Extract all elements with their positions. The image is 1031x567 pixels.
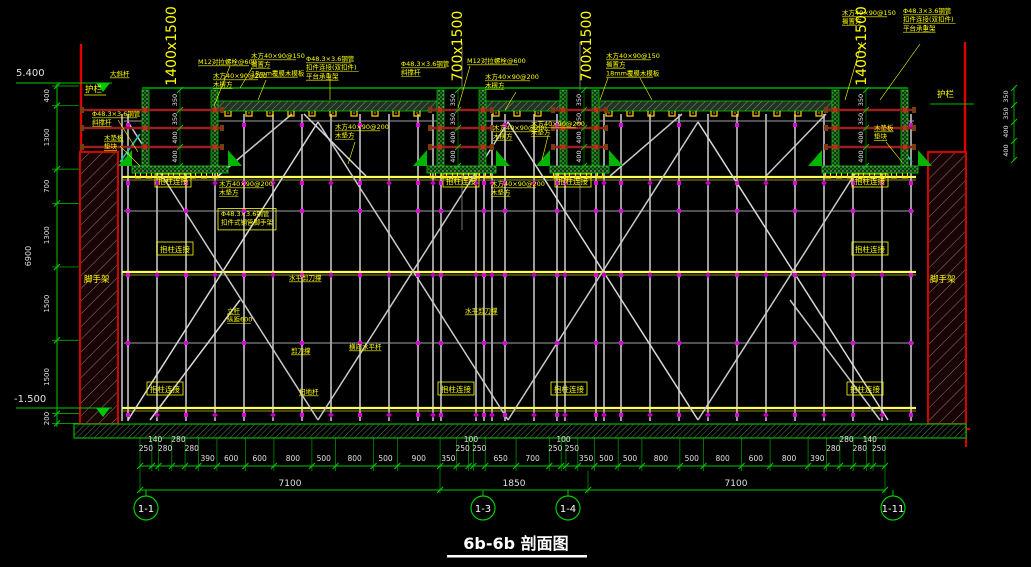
leader-label: M12对拉螺栓@600 — [467, 56, 526, 65]
label-line: 垫块 — [874, 132, 888, 141]
bottom-chain-dim: 800 — [654, 454, 669, 463]
label-line: 木方40×90@200 — [485, 72, 539, 81]
connector-marker — [386, 412, 392, 418]
beam-size-label-4: 1400x1500 — [854, 6, 870, 86]
connector-marker — [594, 209, 598, 213]
label-line: 18mm覆膜木模板 — [251, 68, 305, 77]
leader-label: Φ48.3×3.6钢管扣件连接(双扣件)平台承重架 — [306, 54, 359, 80]
sill-brace — [413, 150, 427, 166]
leader-label: 木方40×90@200木垫方 — [335, 122, 389, 140]
support-pin — [395, 112, 397, 114]
tie-rod-end — [912, 107, 916, 113]
connector-marker — [594, 181, 598, 185]
bottom-chain-dim: 100 — [464, 435, 479, 444]
label-line: 木方40×90@150 — [251, 51, 305, 60]
label-line: 扫地杆 — [299, 387, 319, 396]
tie-rod-end — [551, 144, 555, 150]
bottom-chain-dim: 600 — [224, 454, 239, 463]
connector-marker — [439, 273, 443, 277]
connector-marker — [763, 412, 769, 418]
connector-marker — [416, 181, 420, 185]
beam-depth-dim: 400 — [857, 150, 865, 162]
connector-marker — [416, 123, 420, 127]
label-line: 扣件连接(双扣件) — [903, 15, 954, 24]
leader-label: 水平剪刀撑 — [465, 306, 498, 315]
leader-label: 木方40×90@200木垫方 — [491, 179, 545, 197]
connector-marker — [482, 273, 486, 277]
label-line: Φ48.3×3.6钢管 — [903, 6, 952, 15]
connector-marker — [386, 180, 392, 186]
connector-marker — [562, 412, 568, 418]
support-pin — [495, 112, 497, 114]
label-line: 木方40×90@200 — [491, 179, 545, 188]
support-pin — [353, 112, 355, 114]
tie-rod-end — [490, 107, 494, 113]
bottom-chain-dim: 280 — [171, 435, 186, 444]
boxed-label: Φ48.3×3.6钢管扣件式钢管脚手架 — [218, 209, 276, 230]
grid-bubble-3: 1-4 — [556, 490, 580, 520]
connector-marker — [300, 181, 304, 185]
bottom-chain-dim: 350 — [441, 454, 456, 463]
connector-marker — [619, 341, 623, 345]
tie-rod-nut — [594, 108, 598, 113]
connector-marker — [851, 209, 855, 213]
connector-marker — [416, 209, 420, 213]
connector-marker — [793, 273, 797, 277]
connector-marker — [430, 180, 436, 186]
connector-marker — [705, 180, 711, 186]
total-dim-left: 7100 — [279, 479, 302, 489]
beam-size-label-3: 700x1500 — [579, 11, 595, 82]
connector-marker — [909, 273, 913, 277]
connector-marker — [126, 413, 130, 417]
bottom-chain-dim: 280 — [853, 444, 868, 453]
connector-marker — [473, 412, 479, 418]
connector-marker — [647, 180, 653, 186]
tie-rod-end — [428, 125, 432, 131]
connector-marker — [270, 412, 276, 418]
beam-depth-dim: 350 — [449, 94, 457, 106]
beam-sill — [550, 166, 609, 173]
support-pin — [332, 112, 334, 114]
leader-label: 大斜杆 — [110, 69, 130, 78]
label-line: 搁置方 — [251, 60, 271, 69]
drawing-title: 6b-6b 剖面图 — [463, 534, 568, 553]
left-chain-dim: 700 — [43, 180, 51, 193]
bottom-chain-dim: 250 — [548, 444, 563, 453]
bottom-chain-dim: 250 — [472, 444, 487, 453]
connector-marker — [677, 181, 681, 185]
tie-rod-end — [824, 107, 828, 113]
beam-depth-dim: 350 — [449, 113, 457, 125]
tie-rod-end — [220, 107, 224, 113]
section-drawing-svg: 3503504004003503504004003503504004003503… — [0, 0, 1031, 567]
bottom-chain-dim: 280 — [158, 444, 173, 453]
label-line: 垫块 — [104, 142, 118, 151]
drawing-canvas: 3503504004003503504004003503504004003503… — [0, 0, 1031, 567]
connector-marker — [735, 209, 739, 213]
connector-marker — [126, 123, 130, 127]
left-chain-dim: 1300 — [43, 128, 51, 146]
tie-rod-end — [428, 107, 432, 113]
support-pin — [537, 112, 539, 114]
bottom-chain-dim: 250 — [872, 444, 887, 453]
support-pin — [516, 112, 518, 114]
bottom-chain-dim: 350 — [579, 454, 594, 463]
beam-depth-dim: 400 — [449, 131, 457, 143]
tie-rod-nut — [833, 145, 837, 150]
connector-marker — [439, 209, 443, 213]
right-wall-label: 脚手架 — [930, 274, 956, 285]
beam-sill — [822, 166, 918, 173]
tie-rod-nut — [143, 108, 147, 113]
support-pin — [269, 112, 271, 114]
tie-rod-nut — [903, 126, 907, 131]
tie-rod-nut — [143, 145, 147, 150]
bottom-chain-dim: 500 — [623, 454, 638, 463]
leader-label: M12对拉螺栓@600 — [198, 57, 257, 66]
tie-rod-end — [490, 144, 494, 150]
support-pin — [755, 112, 757, 114]
connector-marker — [555, 341, 559, 345]
connector-marker — [677, 273, 681, 277]
tie-rod-end — [912, 125, 916, 131]
connector-marker — [358, 273, 362, 277]
svg-text:1-1: 1-1 — [138, 504, 154, 515]
connector-marker — [416, 341, 420, 345]
support-pin — [416, 112, 418, 114]
bottom-chain-dim: 800 — [782, 454, 797, 463]
scaffold-diagonal-brace — [218, 114, 292, 176]
connector-marker — [439, 341, 443, 345]
label-line: 抱柱连接 — [446, 176, 476, 186]
connector-marker — [735, 341, 739, 345]
connector-marker — [503, 341, 507, 345]
connector-marker — [328, 180, 334, 186]
label-line: 水平剪刀撑 — [289, 273, 322, 282]
support-pin — [629, 112, 631, 114]
connector-marker — [793, 123, 797, 127]
connector-marker — [482, 341, 486, 345]
beam-size-label-2: 700x1500 — [450, 11, 466, 82]
support-pin — [671, 112, 673, 114]
connector-marker — [763, 180, 769, 186]
tie-rod-end — [428, 144, 432, 150]
leader-label: 水平剪刀撑 — [289, 273, 322, 282]
label-line: M12对拉螺栓@600 — [198, 57, 257, 66]
tie-rod-end — [551, 107, 555, 113]
leader-label: 剪刀撑 — [291, 346, 311, 355]
connector-marker — [793, 181, 797, 185]
support-pin — [692, 112, 694, 114]
beam-depth-dim: 350 — [171, 94, 179, 106]
beam-depth-dim: 350 — [575, 94, 583, 106]
connector-marker — [482, 209, 486, 213]
label-line: 木楞方 — [493, 132, 513, 141]
label-line: 木垫方 — [219, 188, 239, 197]
bottom-chain-dim: 250 — [565, 444, 580, 453]
connector-marker — [184, 341, 188, 345]
tie-rod-nut — [481, 126, 485, 131]
label-line: 扣件式钢管脚手架 — [221, 218, 274, 227]
total-dim-right: 7100 — [725, 479, 748, 489]
tie-rod-nut — [833, 126, 837, 131]
label-line: 斜撑杆 — [401, 68, 421, 77]
connector-marker — [619, 413, 623, 417]
connector-marker — [503, 273, 507, 277]
connector-marker — [705, 412, 711, 418]
label-line: 抱柱连接 — [855, 176, 885, 186]
left-chain-dim: 1500 — [43, 295, 51, 313]
label-line: Φ48.3×3.6钢管 — [306, 54, 355, 63]
sill-brace — [536, 150, 550, 166]
connector-marker — [126, 181, 130, 185]
tie-rod-nut — [594, 126, 598, 131]
label-line: 木垫板 — [104, 133, 124, 142]
label-line: 斜撑杆 — [92, 118, 112, 127]
beam-depth-dim: 400 — [171, 131, 179, 143]
connector-marker — [793, 413, 797, 417]
tie-rod-nut — [594, 145, 598, 150]
label-line: 搁置方 — [606, 60, 626, 69]
support-pin — [290, 112, 292, 114]
support-pin — [311, 112, 313, 114]
support-pin — [227, 112, 229, 114]
bottom-chain-dim: 280 — [185, 444, 200, 453]
bottom-chain-dim: 140 — [148, 435, 163, 444]
connector-marker — [489, 412, 495, 418]
leader-label: 木方40×90@200木楞方 — [485, 72, 539, 90]
bottom-chain-dim: 280 — [826, 444, 841, 453]
connector-marker — [242, 413, 246, 417]
tie-rod-end — [80, 144, 84, 150]
connector-marker — [439, 413, 443, 417]
connector-marker — [619, 181, 623, 185]
svg-text:1-3: 1-3 — [475, 504, 491, 515]
connector-marker — [821, 180, 827, 186]
connector-marker — [619, 209, 623, 213]
leader-label: 木方40×90@150搁置方18mm覆膜木模板 — [251, 51, 305, 77]
bottom-chain-dim: 280 — [839, 435, 854, 444]
connector-marker — [555, 413, 559, 417]
tie-rod-end — [80, 125, 84, 131]
beam-sill — [427, 166, 496, 173]
leader-label: 木方40×90@150搁置方18mm覆膜木模板 — [606, 51, 660, 77]
tie-rod-nut — [561, 108, 565, 113]
label-line: 木垫方 — [491, 188, 511, 197]
tie-rod-end — [912, 144, 916, 150]
support-pin — [650, 112, 652, 114]
svg-text:1-11: 1-11 — [882, 504, 905, 515]
tie-rod-nut — [481, 145, 485, 150]
left-chain-dim: 1300 — [43, 226, 51, 244]
connector-marker — [909, 181, 913, 185]
bottom-chain-dim: 600 — [252, 454, 267, 463]
left-wall — [80, 152, 118, 424]
connector-marker — [735, 273, 739, 277]
connector-marker — [328, 412, 334, 418]
tie-rod-nut — [213, 126, 217, 131]
connector-marker — [126, 209, 130, 213]
label-line: 抱柱连接 — [160, 244, 190, 254]
leader-label: Φ48.3×3.6钢管斜撑杆 — [92, 109, 141, 127]
label-line: 抱柱连接 — [158, 176, 188, 186]
label-line: M12对拉螺栓@600 — [467, 56, 526, 65]
support-pin — [818, 112, 820, 114]
slab-formwork — [486, 101, 560, 111]
connector-marker — [601, 412, 607, 418]
tie-rod-nut — [903, 145, 907, 150]
connector-marker — [594, 341, 598, 345]
connector-marker — [482, 181, 486, 185]
connector-marker — [555, 209, 559, 213]
left-total-dim: 6900 — [24, 246, 33, 266]
right-edge-dim: 400 — [1002, 125, 1010, 137]
support-pin — [374, 112, 376, 114]
connector-marker — [851, 273, 855, 277]
elevation-top-label: 5.400 — [16, 68, 45, 79]
bottom-chain-dim: 100 — [556, 435, 571, 444]
column-clamp-label: 抱柱连接 — [438, 382, 474, 395]
left-chain-dim: 400 — [43, 89, 51, 102]
connector-marker — [503, 413, 507, 417]
label-line: 木垫板 — [874, 123, 894, 132]
connector-marker — [851, 341, 855, 345]
label-line: Φ48.3×3.6钢管 — [221, 209, 270, 218]
connector-marker — [482, 413, 486, 417]
svg-text:1-4: 1-4 — [560, 504, 576, 515]
title-underline — [447, 555, 587, 558]
support-pin — [797, 112, 799, 114]
tie-rod-nut — [438, 126, 442, 131]
left-wall-label: 脚手架 — [84, 274, 110, 285]
beam-depth-dim: 400 — [171, 150, 179, 162]
bottom-chain-dim: 500 — [599, 454, 614, 463]
beam-size-label-1: 1400x1500 — [164, 6, 180, 86]
guardrail-right-label: 护栏 — [937, 89, 955, 100]
connector-marker — [300, 413, 304, 417]
bottom-chain-dim: 600 — [749, 454, 764, 463]
bottom-chain-dim: 800 — [715, 454, 730, 463]
connector-marker — [677, 413, 681, 417]
connector-marker — [909, 413, 913, 417]
connector-marker — [909, 209, 913, 213]
grid-bubble-2: 1-3 — [471, 490, 495, 520]
leader-label: Φ48.3×3.6钢管斜撑杆 — [401, 59, 450, 77]
connector-marker — [126, 341, 130, 345]
label-line: 木方40×90@200 — [335, 122, 389, 131]
sill-brace — [496, 150, 510, 166]
tie-rod-end — [604, 125, 608, 131]
connector-marker — [358, 181, 362, 185]
label-line: 18mm覆膜木模板 — [606, 68, 660, 77]
leader-label: 木方40×90@200木垫方 — [219, 179, 273, 197]
tie-rod-nut — [213, 145, 217, 150]
tie-rod-end — [220, 125, 224, 131]
connector-marker — [647, 412, 653, 418]
label-line: Φ48.3×3.6钢管 — [92, 109, 141, 118]
connector-marker — [735, 413, 739, 417]
label-line: 立杆 — [227, 306, 241, 315]
connector-marker — [555, 273, 559, 277]
scaffold-diagonal-brace — [790, 300, 880, 420]
right-edge-dim: 400 — [1002, 144, 1010, 156]
elevation-bottom-label: -1.500 — [14, 394, 46, 405]
label-line: 木垫方 — [335, 131, 355, 140]
connector-marker — [821, 412, 827, 418]
bottom-chain-dim: 650 — [493, 454, 508, 463]
right-edge-dim: 350 — [1002, 107, 1010, 119]
tie-rod-nut — [213, 108, 217, 113]
tie-rod-end — [604, 144, 608, 150]
tie-rod-nut — [143, 126, 147, 131]
connector-marker — [793, 341, 797, 345]
tie-rod-nut — [438, 108, 442, 113]
label-line: 抱柱连接 — [850, 384, 880, 394]
total-dim-middle: 1850 — [503, 479, 526, 489]
connector-marker — [416, 273, 420, 277]
ground-slab — [74, 424, 966, 438]
connector-marker — [300, 341, 304, 345]
connector-marker — [416, 413, 420, 417]
tie-rod-end — [824, 125, 828, 131]
bottom-chain-dim: 250 — [139, 444, 154, 453]
connector-marker — [619, 123, 623, 127]
connector-marker — [439, 181, 443, 185]
label-line: 平台承重架 — [306, 71, 339, 80]
connector-marker — [212, 412, 218, 418]
tie-rod-end — [220, 144, 224, 150]
grid-bubble-4: 1-11 — [881, 490, 905, 520]
tie-rod-nut — [833, 108, 837, 113]
support-pin — [608, 112, 610, 114]
beam-depth-dim: 400 — [857, 131, 865, 143]
beam-depth-dim: 400 — [575, 131, 583, 143]
bottom-chain-dim: 900 — [412, 454, 427, 463]
tie-rod-end — [604, 107, 608, 113]
bottom-chain-dim: 140 — [863, 435, 878, 444]
label-line: 抱柱连接 — [554, 384, 584, 394]
slab-formwork — [218, 101, 437, 111]
connector-marker — [735, 181, 739, 185]
connector-marker — [793, 209, 797, 213]
annotations-layer: 大斜杆Φ48.3×3.6钢管斜撑杆木垫板垫块M12对拉螺栓@600木方40×90… — [92, 6, 956, 396]
bottom-chain-dim: 390 — [810, 454, 825, 463]
beam-depth-dim: 350 — [171, 113, 179, 125]
connector-marker — [430, 412, 436, 418]
beam-depth-dim: 400 — [575, 150, 583, 162]
beam-depth-dim: 400 — [449, 150, 457, 162]
left-chain-dim: 1500 — [43, 368, 51, 386]
connector-marker — [358, 413, 362, 417]
connector-marker — [677, 341, 681, 345]
connector-marker — [735, 123, 739, 127]
label-line: 木方40×90@200 — [531, 119, 585, 128]
beam-depth-dim: 350 — [857, 94, 865, 106]
beam-depth-dim: 350 — [857, 113, 865, 125]
leader-label: 横向水平杆 — [349, 342, 382, 351]
connector-marker — [184, 209, 188, 213]
leader-line — [600, 78, 608, 100]
label-line: 抱柱连接 — [441, 384, 471, 394]
connector-marker — [212, 180, 218, 186]
bottom-chain-dim: 800 — [286, 454, 301, 463]
support-pin — [713, 112, 715, 114]
bottom-chain-dim: 390 — [200, 454, 215, 463]
label-line: 木楞方 — [485, 81, 505, 90]
label-line: 扣件连接(双扣件) — [306, 63, 357, 72]
connector-marker — [677, 123, 681, 127]
